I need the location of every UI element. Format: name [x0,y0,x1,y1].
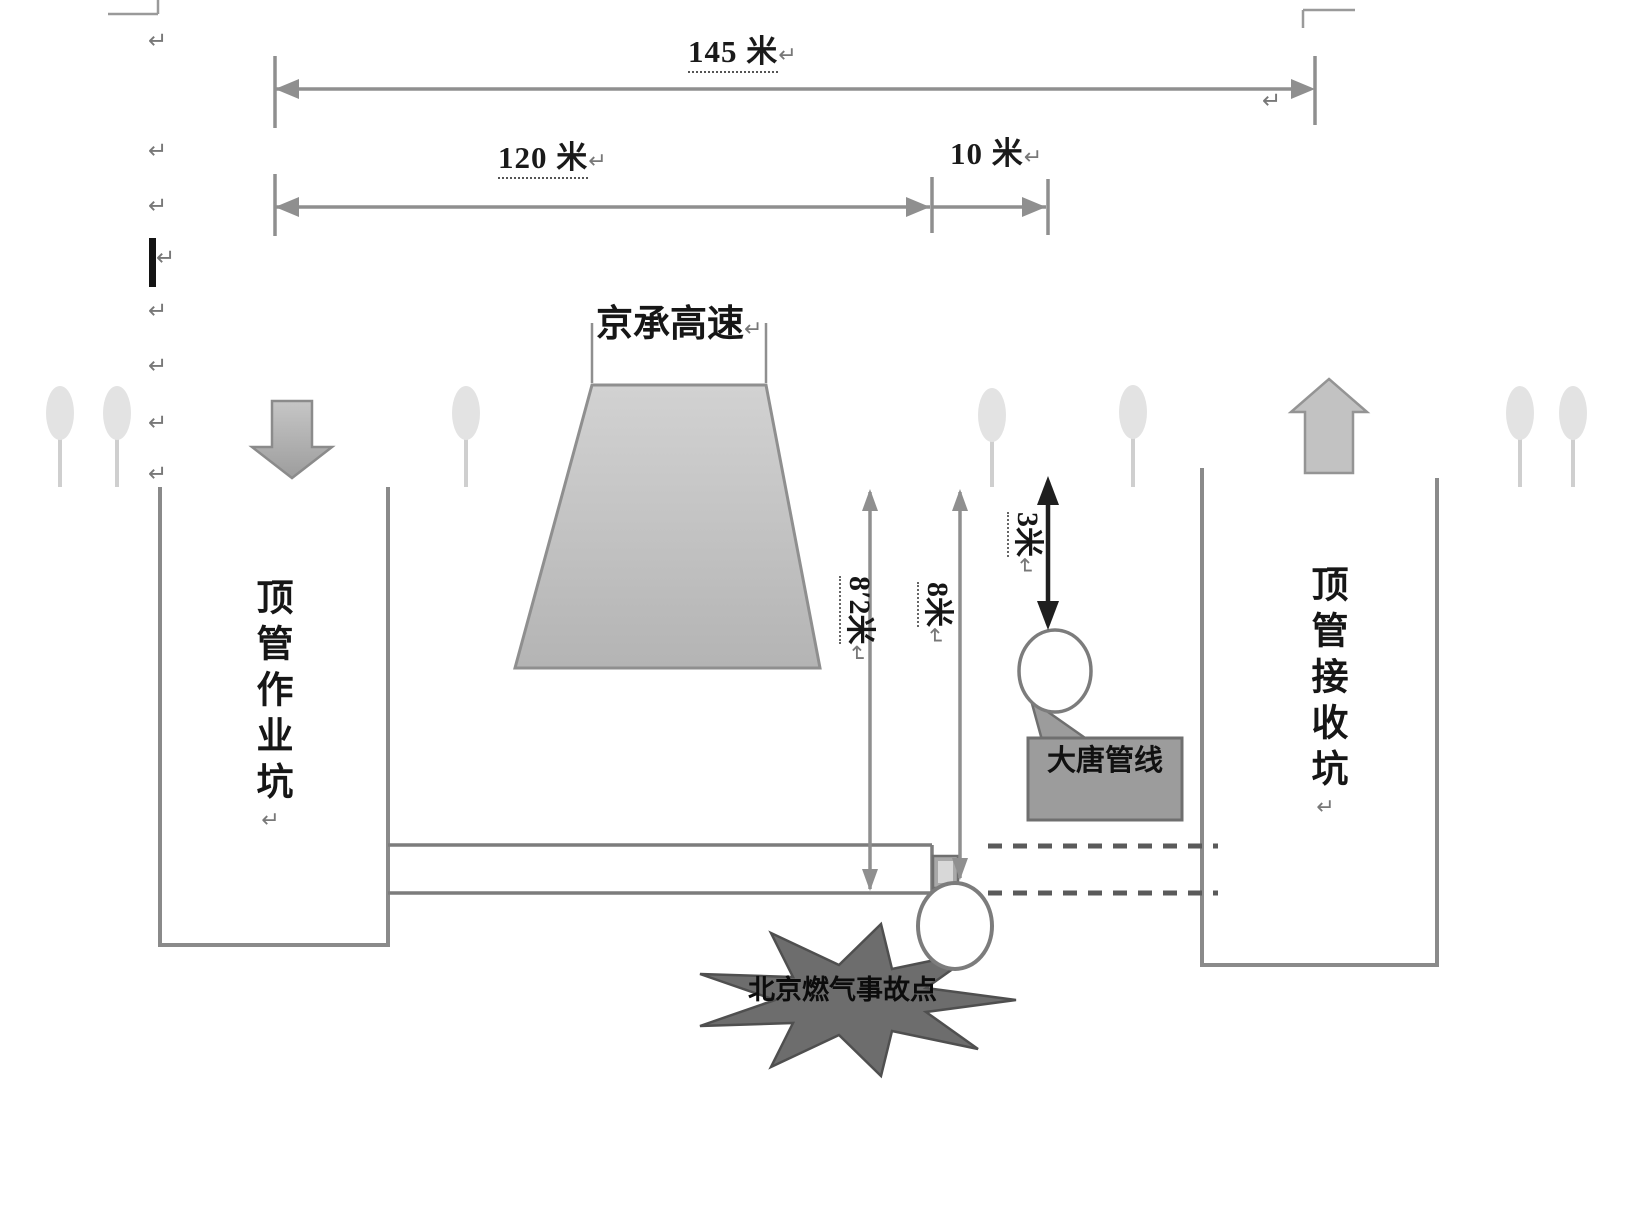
datang-pipeline-label: 大唐管线 [1032,747,1178,776]
paragraph-mark-icon: ↵ [1313,795,1338,829]
depth-8-2m-label: 8′2米↵ [844,576,874,663]
expressway-label: 京承高速↵ [596,306,762,343]
paragraph-mark-icon: ↵ [156,247,175,270]
arrowhead-left-icon [275,197,299,217]
paragraph-mark-icon: ↵ [148,463,167,486]
dimension-120m-10m [275,174,1048,236]
paragraph-mark-icon: ↵ [258,808,283,842]
paragraph-mark-icon: ↵ [844,644,869,662]
arrowhead-left-icon [275,79,299,99]
gas-pipeline-circle [918,883,992,969]
arrowhead-down-icon [862,869,878,891]
layout-bracket-top-right-icon [1303,10,1355,28]
arrowhead-up-icon [1037,476,1059,505]
paragraph-mark-icon: ↵ [744,317,762,342]
paragraph-mark-icon: ↵ [148,355,167,378]
dimension-145m-label: 145 米↵ [688,36,798,67]
paragraph-mark-icon: ↵ [148,140,167,163]
arrowhead-up-icon [952,489,968,511]
dimension-10m-label: 10 米↵ [950,138,1043,169]
dimension-120m-label: 120 米↵ [498,142,608,173]
paragraph-mark-icon: ↵ [1012,557,1037,575]
tree-icon [1119,385,1147,487]
dimension-depth-8-2m [862,489,878,891]
pipe-jacking-machine-head-face [938,861,953,883]
datang-pipeline-circle [1019,630,1091,712]
dimension-depth-8m [952,489,968,880]
paragraph-mark-icon: ↵ [148,412,167,435]
paragraph-mark-icon: ↵ [778,43,797,68]
engineering-diagram [0,0,1628,1222]
working-pit-label: 顶管作业坑↵ [252,578,289,842]
accident-point-label: 北京燃气事故点 [748,977,937,1004]
paragraph-mark-icon: ↵ [1024,145,1043,170]
tree-icon [452,386,480,487]
paragraph-mark-icon: ↵ [922,627,947,645]
tree-icon [1559,386,1587,487]
receiving-pit-label: 顶管接收坑↵ [1307,565,1344,829]
tree-icon [46,386,74,487]
arrowhead-up-icon [862,489,878,511]
depth-8m-label: 8米↵ [922,582,952,645]
paragraph-mark-icon: ↵ [148,30,167,53]
jacked-pipe [388,845,932,893]
arrowhead-right-icon [906,197,930,217]
word-document-canvas: 145 米↵ 120 米↵ 10 米↵ 京承高速↵ 顶管作业坑↵ 顶管接收坑↵ … [0,0,1628,1222]
arrowhead-down-icon [1037,601,1059,630]
layout-bracket-top-left-icon [108,0,158,14]
receiving-direction-up-arrow-icon [1291,379,1367,473]
tree-icon [103,386,131,487]
paragraph-mark-icon: ↵ [148,195,167,218]
expressway-embankment-shape [515,385,820,668]
tree-icon [978,388,1006,487]
depth-3m-label: 3米↵ [1012,512,1042,575]
text-cursor [149,238,156,287]
arrowhead-right-icon [1022,197,1046,217]
paragraph-mark-icon: ↵ [148,300,167,323]
tree-icon [1506,386,1534,487]
jacking-direction-down-arrow-icon [252,401,332,478]
paragraph-mark-icon: ↵ [1262,90,1281,113]
arrowhead-right-icon [1291,79,1315,99]
paragraph-mark-icon: ↵ [588,149,607,174]
